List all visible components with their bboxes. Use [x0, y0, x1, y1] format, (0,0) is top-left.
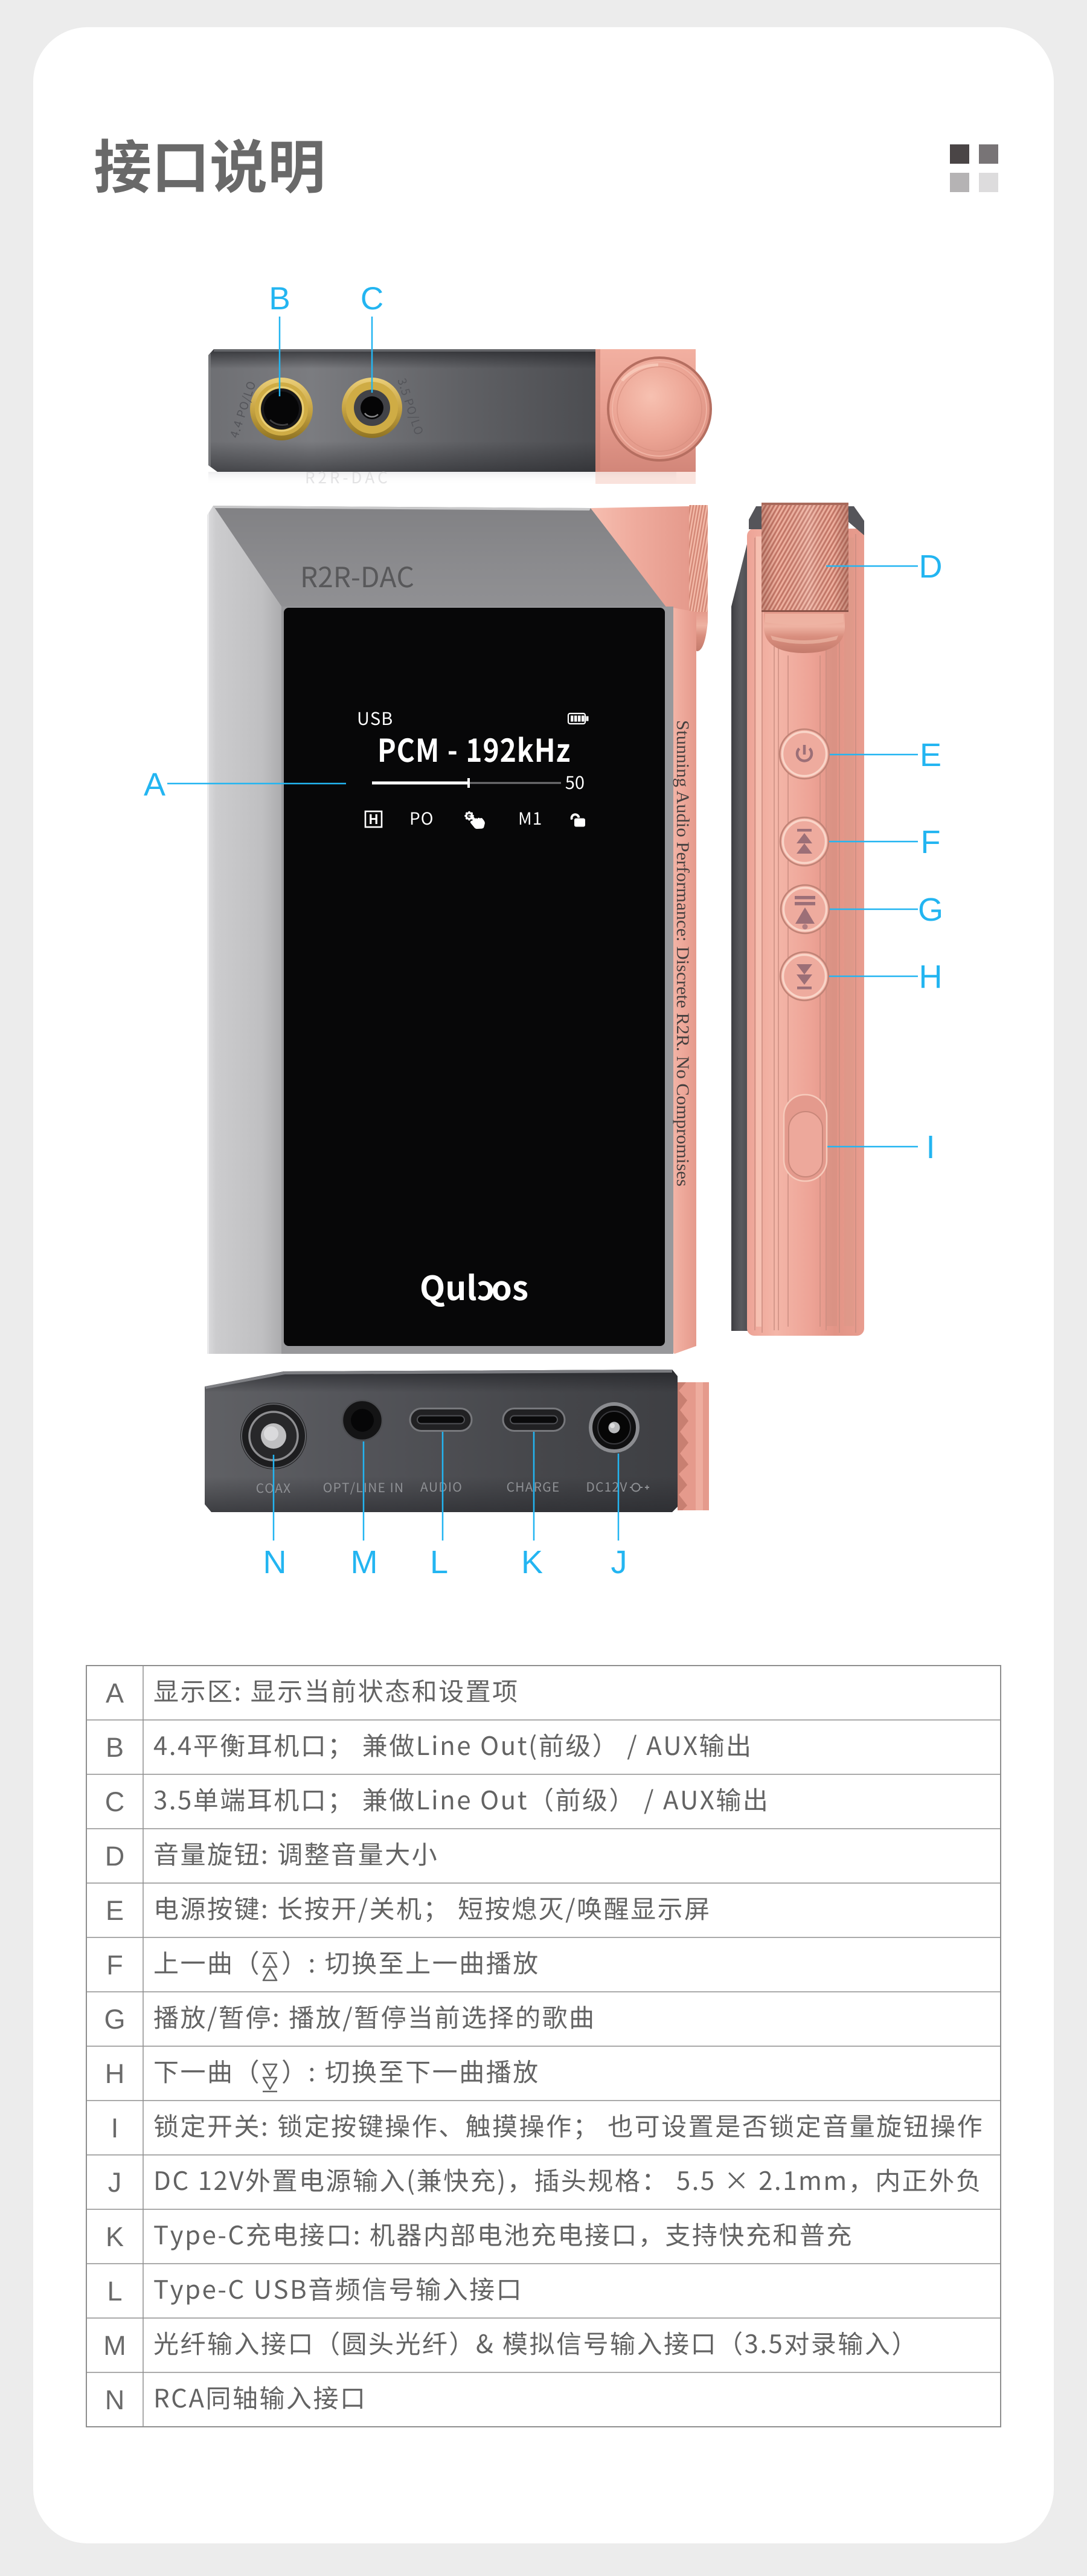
- svg-text:J: J: [108, 2167, 122, 2198]
- svg-text:F: F: [921, 824, 941, 860]
- svg-text:H: H: [105, 2058, 125, 2089]
- svg-text:G: G: [918, 892, 943, 928]
- svg-text:A: A: [144, 767, 165, 803]
- svg-text:B: B: [269, 281, 290, 317]
- svg-text:L: L: [430, 1544, 448, 1580]
- svg-text:I: I: [111, 2113, 119, 2143]
- svg-text:H: H: [919, 959, 943, 995]
- svg-text:K: K: [106, 2221, 124, 2252]
- svg-text:L: L: [107, 2276, 122, 2307]
- svg-text:N: N: [263, 1544, 287, 1580]
- svg-text:E: E: [920, 737, 941, 773]
- svg-text:C: C: [105, 1786, 125, 1817]
- svg-text:D: D: [105, 1841, 125, 1872]
- svg-text:J: J: [611, 1544, 627, 1580]
- svg-text:A: A: [106, 1678, 124, 1708]
- svg-text:D: D: [919, 549, 943, 585]
- svg-text:E: E: [106, 1895, 124, 1926]
- svg-text:M: M: [103, 2330, 126, 2361]
- svg-text:N: N: [105, 2384, 125, 2415]
- svg-text:B: B: [106, 1732, 124, 1763]
- svg-text:K: K: [521, 1544, 543, 1580]
- svg-text:F: F: [106, 1950, 123, 1980]
- svg-text:G: G: [104, 2004, 125, 2035]
- svg-text:M: M: [351, 1544, 378, 1580]
- svg-text:C: C: [361, 281, 383, 317]
- svg-text:I: I: [926, 1129, 935, 1165]
- svg-text:Stunning Audio Performance: Di: Stunning Audio Performance: Discrete R2R…: [673, 720, 693, 1187]
